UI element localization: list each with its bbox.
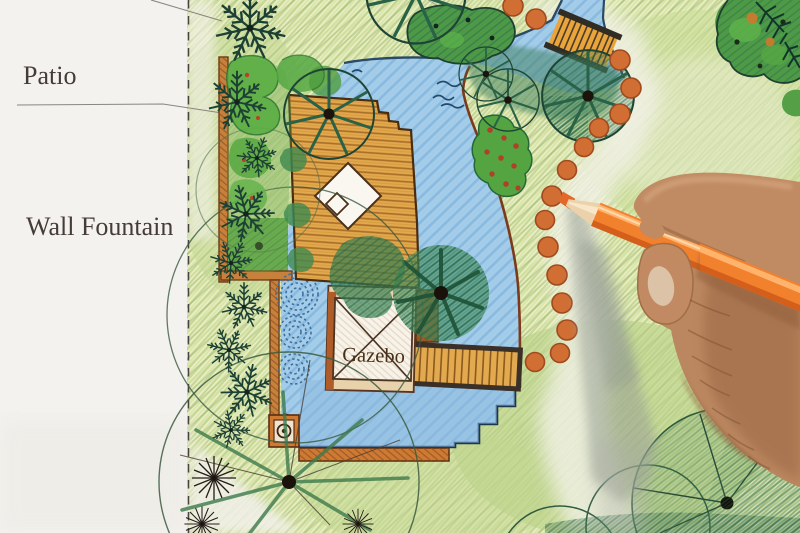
svg-text:Gazebo: Gazebo bbox=[342, 344, 405, 368]
svg-text:Patio: Patio bbox=[23, 61, 76, 90]
svg-text:Wall Fountain: Wall Fountain bbox=[26, 212, 173, 241]
